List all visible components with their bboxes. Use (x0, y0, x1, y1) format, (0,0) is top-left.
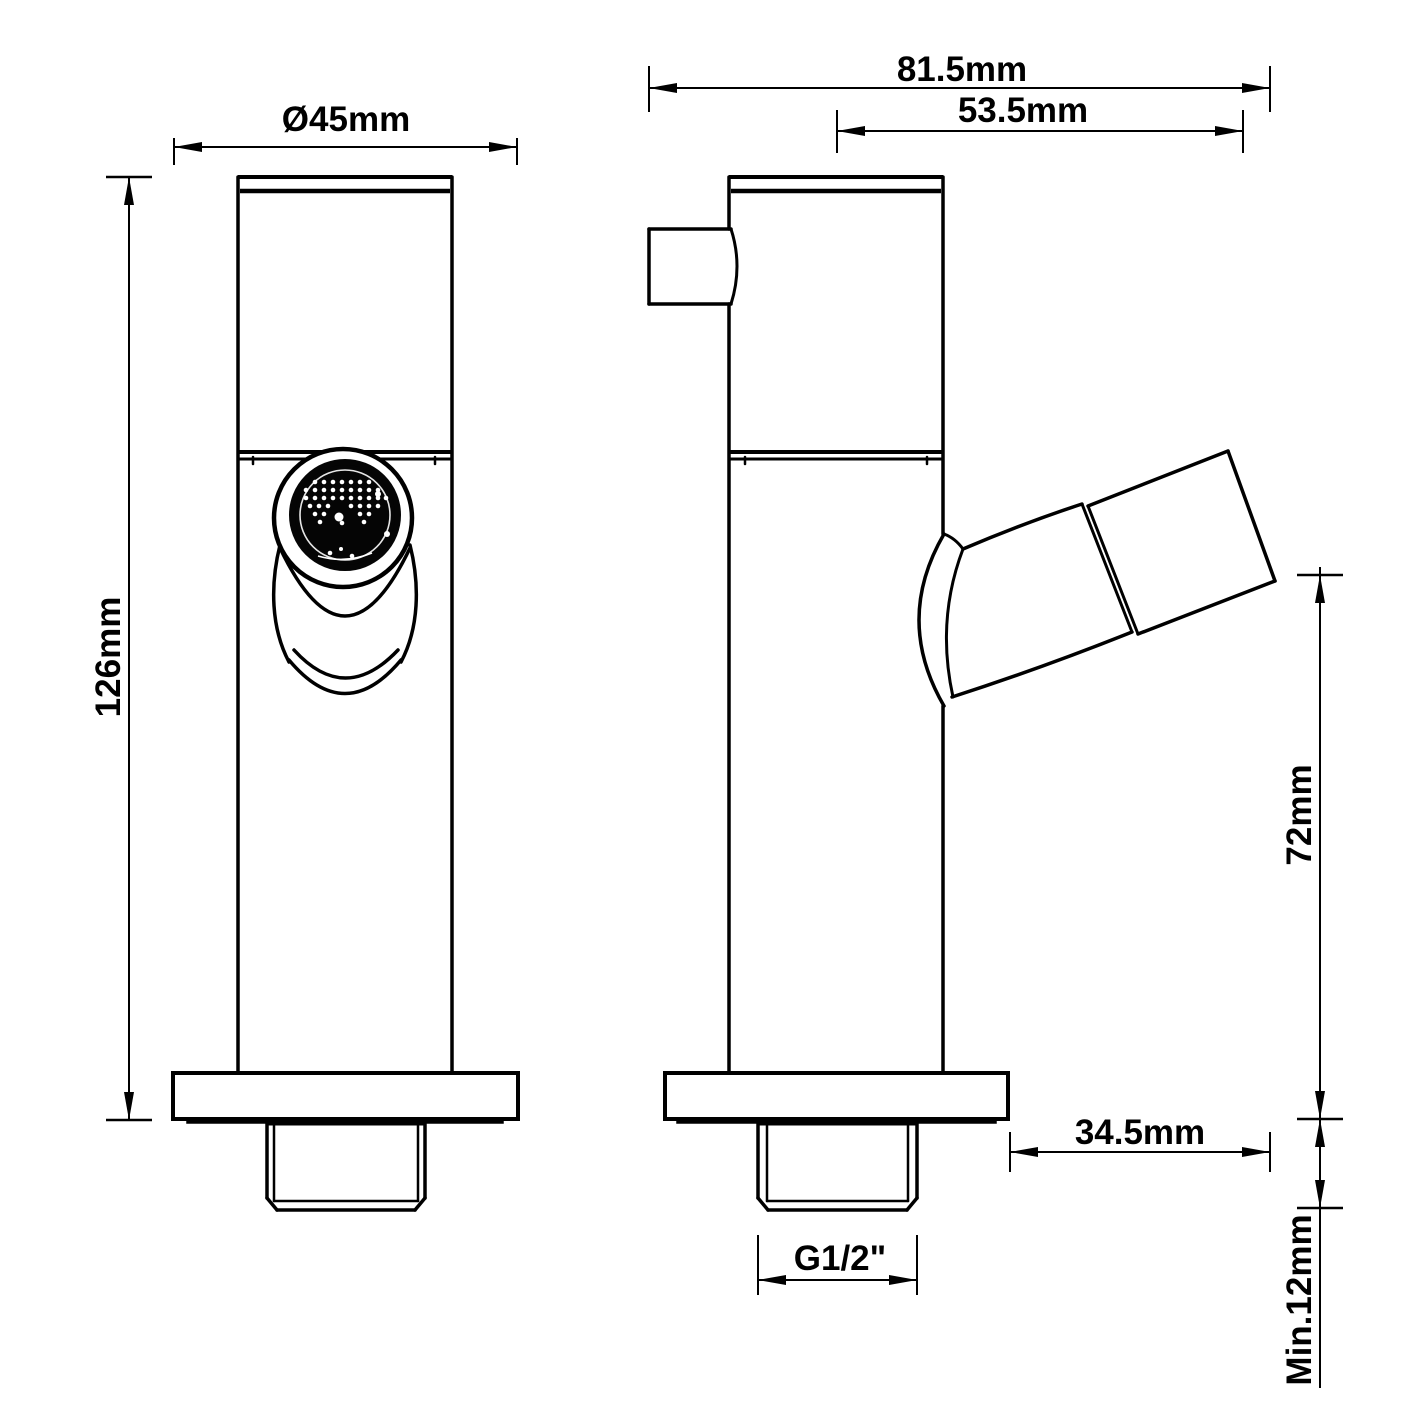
aerator-center-dot (335, 513, 344, 522)
dimension-annotations: Ø45mm 81.5mm 53.5mm 126mm (89, 50, 1343, 1388)
dim-flange-diameter-label: Ø45mm (282, 100, 410, 139)
side-threaded-inlet (758, 1123, 917, 1210)
push-button-knob (649, 229, 737, 304)
dim-spout-reach: 34.5mm (1010, 1113, 1270, 1172)
dim-inlet-thread: G1/2" (758, 1235, 917, 1295)
dim-overall-height: 126mm (89, 177, 152, 1120)
dim-outlet-height: 72mm (1280, 567, 1343, 1119)
side-body-split-lines (729, 452, 943, 464)
front-base-flange (173, 1073, 518, 1122)
technical-drawing-canvas: Ø45mm 81.5mm 53.5mm 126mm (0, 0, 1401, 1422)
dim-spout-offset: 53.5mm (837, 91, 1243, 153)
dim-spout-offset-label: 53.5mm (958, 91, 1088, 130)
spout-saddle-transition (919, 534, 963, 706)
side-base-flange (665, 1073, 1008, 1122)
aerator-face (292, 462, 398, 568)
dim-overall-depth-label: 81.5mm (897, 50, 1027, 89)
front-view (173, 177, 518, 1210)
front-body-outline (238, 177, 452, 1073)
dim-flange-diameter: Ø45mm (174, 100, 517, 165)
dim-min-mount-thickness-label: Min.12mm (1280, 1214, 1319, 1385)
faucet-dimension-drawing: Ø45mm 81.5mm 53.5mm 126mm (0, 0, 1401, 1422)
dim-overall-height-label: 126mm (89, 597, 128, 718)
side-body-outline (729, 177, 943, 1073)
dim-inlet-thread-label: G1/2" (794, 1239, 886, 1278)
dim-outlet-height-label: 72mm (1280, 764, 1319, 865)
side-view (649, 177, 1275, 1210)
dim-min-mount-thickness: Min.12mm (1280, 1119, 1343, 1388)
angled-spout (952, 451, 1275, 697)
dim-spout-reach-label: 34.5mm (1075, 1113, 1205, 1152)
front-threaded-inlet (267, 1123, 425, 1210)
